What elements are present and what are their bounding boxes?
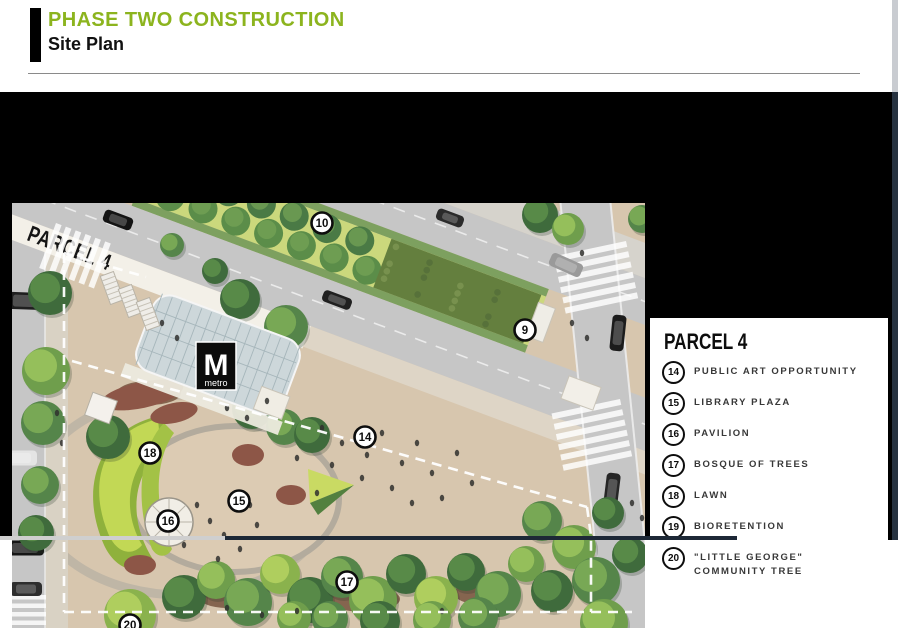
map-marker: 14	[355, 427, 376, 448]
map-marker-number: 9	[522, 325, 528, 337]
legend-item-label: PUBLIC ART OPPORTUNITY	[694, 361, 858, 379]
map-marker-number: 16	[162, 516, 175, 528]
shrub-bed	[276, 485, 306, 505]
map-marker: 9	[515, 320, 536, 341]
site-plan-image: PARCEL 4	[12, 203, 645, 628]
map-marker: 20	[120, 615, 141, 628]
shrub-bed	[232, 444, 264, 466]
map-marker-number: 17	[341, 577, 354, 589]
map-marker-number: 15	[233, 496, 246, 508]
legend-item-number: 20	[662, 547, 685, 570]
site-plan-map: PARCEL 4	[12, 203, 645, 628]
legend-item-label: PAVILION	[694, 423, 750, 441]
legend-item-label: LAWN	[694, 485, 728, 503]
slide-canvas: PARCEL 4	[0, 92, 893, 540]
legend-item-label: "LITTLE GEORGE" COMMUNITY TREE	[694, 547, 864, 580]
legend-panel: PARCEL 4 14PUBLIC ART OPPORTUNITY15LIBRA…	[650, 318, 888, 572]
header-divider	[28, 73, 860, 74]
map-marker: 18	[140, 443, 161, 464]
legend-item-label: BOSQUE OF TREES	[694, 454, 809, 472]
window-edge	[0, 536, 225, 540]
map-marker: 15	[229, 491, 250, 512]
slide-page: { "header": { "title": "PHASE TWO CONSTR…	[0, 0, 898, 540]
window-edge	[892, 0, 898, 92]
legend-item: 16PAVILION	[662, 423, 878, 446]
page-subtitle: Site Plan	[48, 34, 124, 55]
metro-logo: M metro	[196, 342, 236, 390]
window-edge	[225, 536, 737, 540]
metro-wordmark: metro	[204, 378, 227, 388]
map-marker-number: 14	[359, 432, 372, 444]
map-marker-number: 10	[316, 218, 329, 230]
map-marker-number: 20	[124, 620, 137, 628]
map-marker-number: 18	[144, 448, 157, 460]
legend-item: 17BOSQUE OF TREES	[662, 454, 878, 477]
legend-item-number: 14	[662, 361, 685, 384]
page-title: PHASE TWO CONSTRUCTION	[48, 9, 345, 32]
legend-item-number: 15	[662, 392, 685, 415]
legend-item-list: 14PUBLIC ART OPPORTUNITY15LIBRARY PLAZA1…	[662, 361, 878, 580]
car	[12, 451, 37, 466]
legend-item: 18LAWN	[662, 485, 878, 508]
legend-item: 14PUBLIC ART OPPORTUNITY	[662, 361, 878, 384]
legend-item: 15LIBRARY PLAZA	[662, 392, 878, 415]
legend-item-label: LIBRARY PLAZA	[694, 392, 791, 410]
title-accent-bar	[30, 8, 41, 62]
window-edge	[892, 92, 898, 540]
legend-item-number: 16	[662, 423, 685, 446]
map-marker: 17	[337, 572, 358, 593]
legend-item-label: BIORETENTION	[694, 516, 785, 534]
map-marker: 16	[158, 511, 179, 532]
car	[12, 582, 42, 596]
legend-item: 20"LITTLE GEORGE" COMMUNITY TREE	[662, 547, 878, 580]
shrub-bed	[124, 555, 156, 575]
legend-title: PARCEL 4	[664, 329, 831, 355]
map-marker: 10	[312, 213, 333, 234]
slide-header: PHASE TWO CONSTRUCTION Site Plan	[0, 0, 898, 92]
legend-item-number: 17	[662, 454, 685, 477]
legend-item-number: 18	[662, 485, 685, 508]
